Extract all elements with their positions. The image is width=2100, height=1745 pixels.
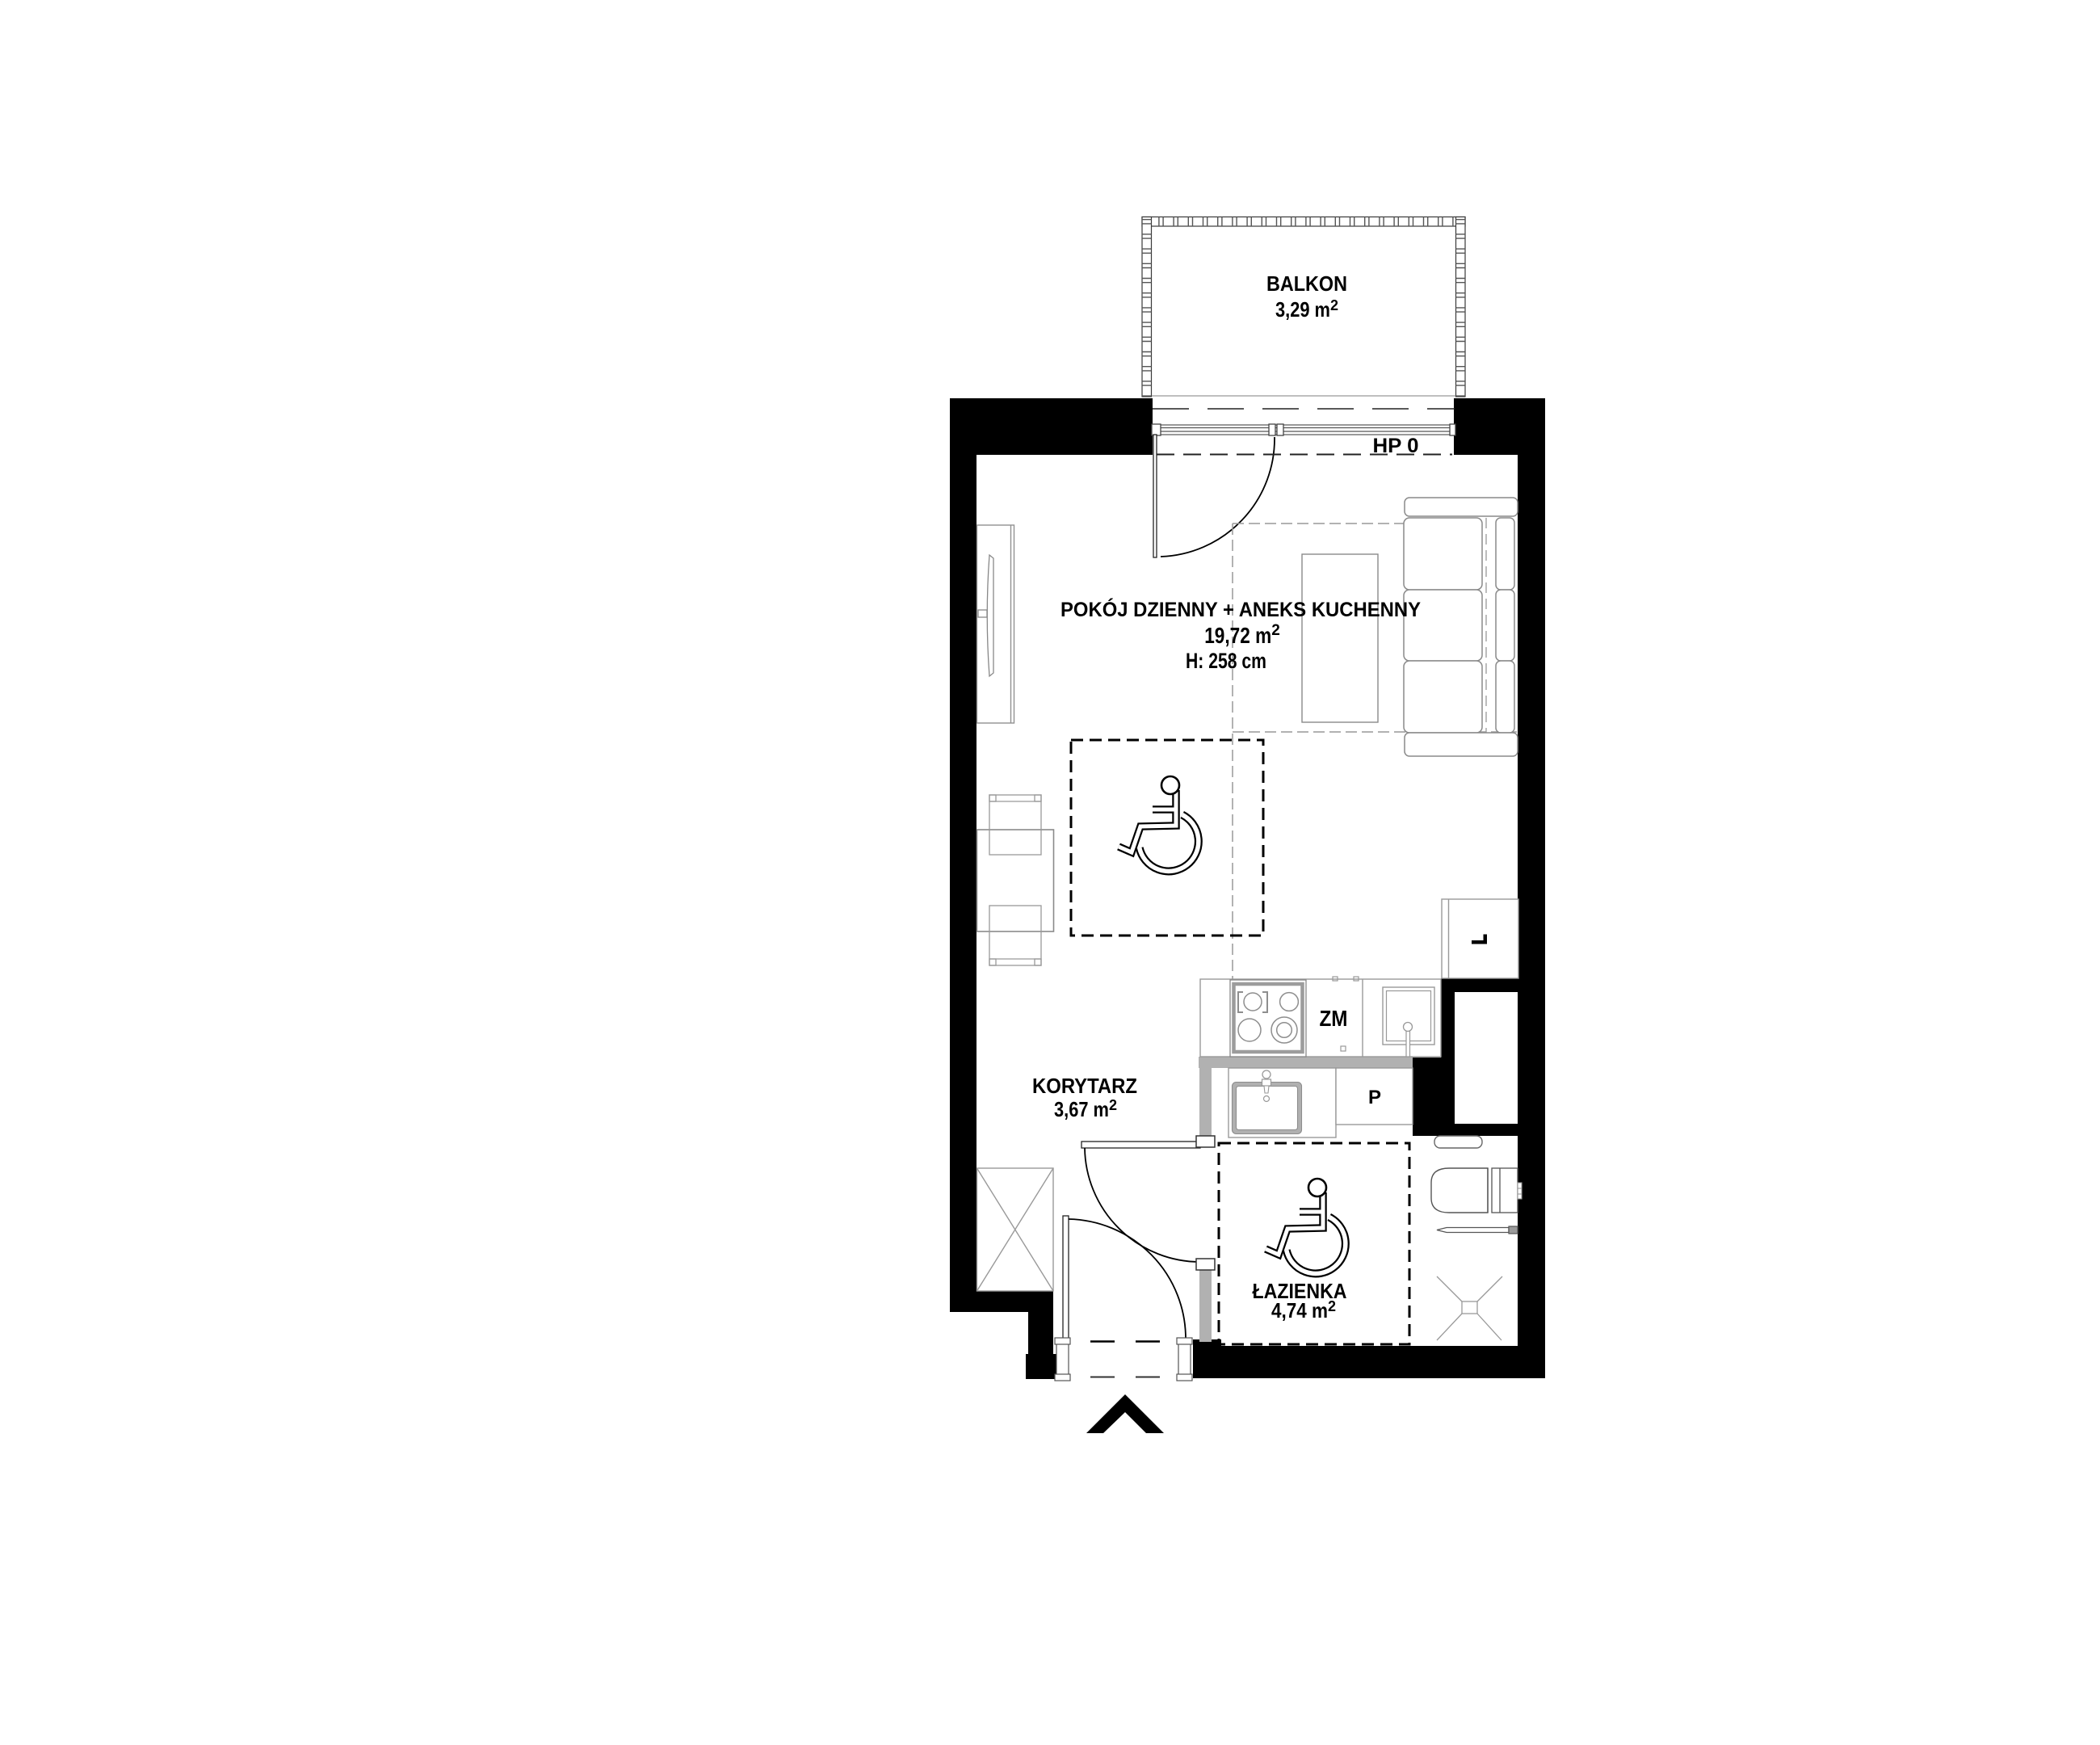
svg-text:19,72 m2: 19,72 m2 xyxy=(1204,622,1280,648)
svg-text:3,67 m2: 3,67 m2 xyxy=(1054,1097,1117,1121)
svg-text:BALKON: BALKON xyxy=(1266,271,1347,296)
svg-text:4,74 m2: 4,74 m2 xyxy=(1271,1298,1336,1322)
svg-text:P: P xyxy=(1368,1087,1381,1108)
svg-text:3,29 m2: 3,29 m2 xyxy=(1275,297,1338,322)
svg-text:POKÓJ DZIENNY + ANEKS KUCHENNY: POKÓJ DZIENNY + ANEKS KUCHENNY xyxy=(1060,597,1421,621)
svg-text:KORYTARZ: KORYTARZ xyxy=(1032,1074,1137,1098)
svg-text:ZM: ZM xyxy=(1320,1006,1348,1031)
svg-text:H: 258 cm: H: 258 cm xyxy=(1186,649,1266,673)
svg-text:HP 0: HP 0 xyxy=(1373,435,1419,457)
